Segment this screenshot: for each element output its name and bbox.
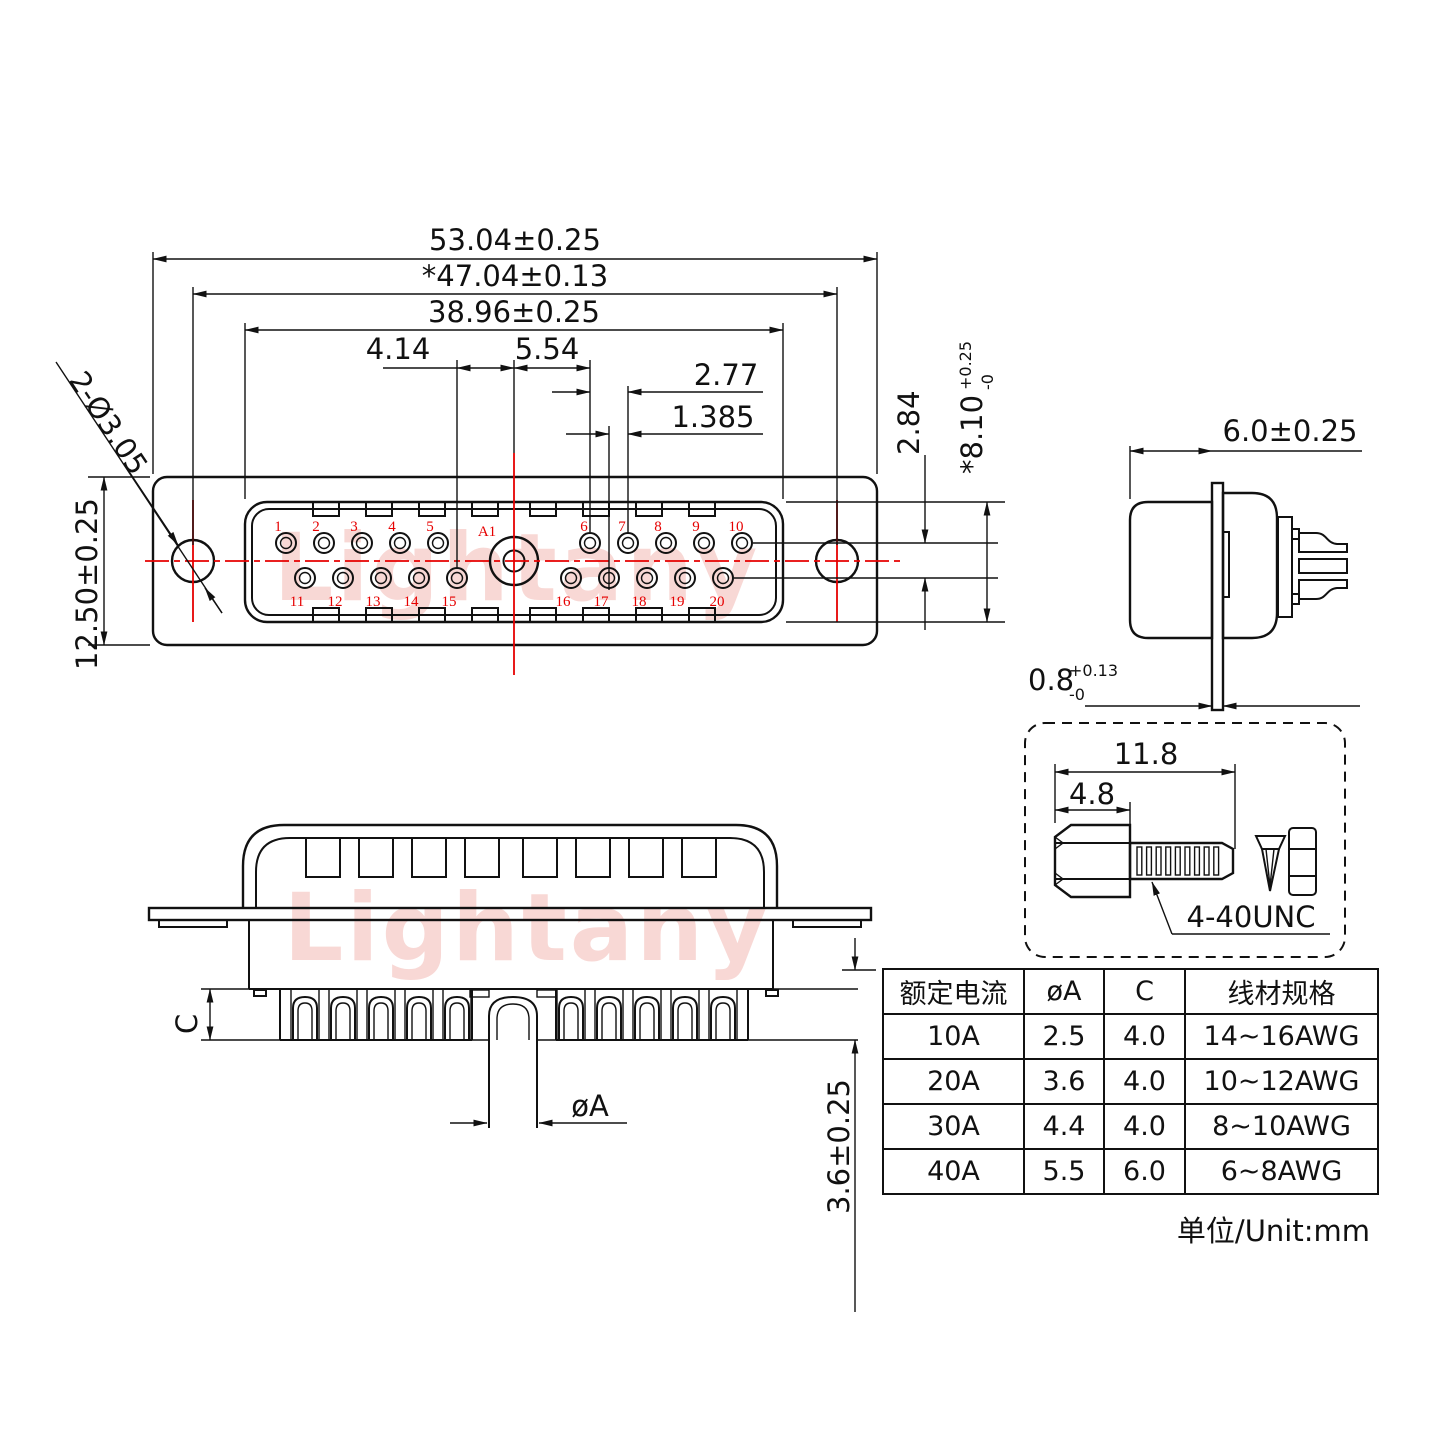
pin-label-3: 3: [350, 519, 358, 535]
dim-mount-spacing: *47.04±0.13: [422, 259, 608, 293]
pin-label-10: 10: [729, 519, 744, 535]
solder-cup-lower: [1299, 580, 1347, 599]
watermark-bottom: Lightany: [284, 874, 771, 983]
pin-label-1: 1: [274, 519, 282, 535]
dim-half-pitch: 1.385: [671, 400, 754, 434]
dim-screw-head: 4.8: [1069, 777, 1115, 811]
header-rated-current: 额定电流: [883, 969, 1024, 1014]
dim-body-height: 12.50±0.25: [70, 498, 104, 670]
bottom-shell-slots: [306, 838, 716, 877]
dim-row-spacing: 2.84: [892, 390, 926, 455]
pin-label-4: 4: [388, 519, 396, 535]
svg-text:12.50±0.25: 12.50±0.25: [70, 498, 104, 670]
dim-overall-width: 53.04±0.25: [429, 223, 601, 257]
svg-text:+0.25: +0.25: [956, 341, 975, 390]
spec-table-row: 40A 5.5 6.0 6~8AWG: [883, 1149, 1378, 1194]
dim-flange-tol-plus: +0.13: [1069, 661, 1118, 680]
dim-cup-depth: C: [170, 1014, 204, 1034]
side-extension-lines: [1130, 446, 1362, 499]
dim-pin6-offset: 5.54: [515, 332, 580, 366]
pin-label-a1: A1: [478, 524, 496, 540]
svg-text:*8.10: *8.10: [955, 395, 989, 474]
header-pin-diameter: øA: [1024, 969, 1104, 1014]
pin-label-5: 5: [426, 519, 434, 535]
spec-table: 额定电流 øA C 线材规格 10A 2.5 4.0 14~16AWG 20A …: [882, 968, 1379, 1195]
pin-label-16: 16: [556, 594, 572, 610]
side-nub-top: [1292, 529, 1299, 539]
pin-label-7: 7: [618, 519, 626, 535]
screw-threads: [1137, 847, 1219, 875]
side-body: [1130, 502, 1212, 638]
dim-flange-thickness: 0.8: [1028, 663, 1074, 697]
dim-mount-holes: 2-Ø3.05: [62, 365, 155, 481]
dim-pin15-offset: 4.14: [366, 332, 431, 366]
spec-table-row: 30A 4.4 4.0 8~10AWG: [883, 1104, 1378, 1149]
dim-tail-length: 3.6±0.25: [822, 1079, 856, 1214]
pin-label-20: 20: [710, 594, 725, 610]
pin-label-12: 12: [328, 594, 343, 610]
pin-label-13: 13: [366, 594, 381, 610]
pin-label-15: 15: [442, 594, 457, 610]
svg-text:3.6±0.25: 3.6±0.25: [822, 1079, 856, 1214]
dim-shell-height: *8.10 +0.25 -0: [955, 341, 997, 474]
front-view: 1 2 3 4 5 6 7 8 9 10 11 12 13 14 15 16 1…: [56, 223, 1005, 675]
unit-note: 单位/Unit:mm: [1130, 1208, 1370, 1250]
solder-cup-upper: [1299, 533, 1347, 552]
pin-label-19: 19: [670, 594, 685, 610]
side-insulator: [1223, 493, 1277, 638]
pin-label-6: 6: [580, 519, 588, 535]
solder-comb-left: [280, 989, 472, 1040]
contact-pin-head: [1256, 836, 1285, 849]
svg-text:C: C: [170, 1014, 204, 1034]
pin-label-8: 8: [654, 519, 662, 535]
header-c: C: [1104, 969, 1185, 1014]
dim-depth: 6.0±0.25: [1223, 414, 1358, 448]
insulator-tab-right: [766, 990, 778, 996]
pin-label-17: 17: [594, 594, 610, 610]
power-pin-bottom: [470, 990, 556, 1128]
side-nub-bottom: [1292, 594, 1299, 604]
insulator-tab-left: [254, 990, 266, 996]
spec-table-row: 20A 3.6 4.0 10~12AWG: [883, 1059, 1378, 1104]
screw-detail: 11.8 4.8 4-40UNC: [1025, 723, 1345, 957]
hex-nut: [1289, 828, 1316, 895]
drawing-page: Lightany Lightany: [0, 0, 1440, 1440]
pin-label-14: 14: [404, 594, 420, 610]
screw-shaft: [1130, 843, 1233, 879]
side-step: [1278, 517, 1292, 617]
spec-table-header-row: 额定电流 øA C 线材规格: [883, 969, 1378, 1014]
header-wire-gauge: 线材规格: [1185, 969, 1378, 1014]
side-view: 6.0±0.25 0.8 +0.13 -0: [1028, 414, 1362, 710]
screw-head: [1055, 825, 1130, 897]
dim-pin-diameter: øA: [571, 1089, 609, 1123]
pin-label-11: 11: [290, 594, 304, 610]
dim-pitch: 2.77: [694, 358, 759, 392]
dim-screw-total: 11.8: [1114, 737, 1179, 771]
dim-flange-tol-minus: -0: [1069, 685, 1085, 704]
svg-text:2-Ø3.05: 2-Ø3.05: [62, 365, 155, 481]
solder-cup-middle: [1299, 559, 1347, 573]
spec-table-row: 10A 2.5 4.0 14~16AWG: [883, 1014, 1378, 1059]
pin-label-9: 9: [692, 519, 700, 535]
thread-spec: 4-40UNC: [1187, 900, 1316, 934]
solder-comb-right: [556, 989, 748, 1040]
svg-text:2.84: 2.84: [892, 390, 926, 455]
side-flange: [1212, 483, 1223, 710]
pin-label-18: 18: [632, 594, 647, 610]
svg-text:-0: -0: [978, 374, 997, 390]
dim-shell-width: 38.96±0.25: [428, 295, 600, 329]
pin-label-2: 2: [312, 519, 320, 535]
